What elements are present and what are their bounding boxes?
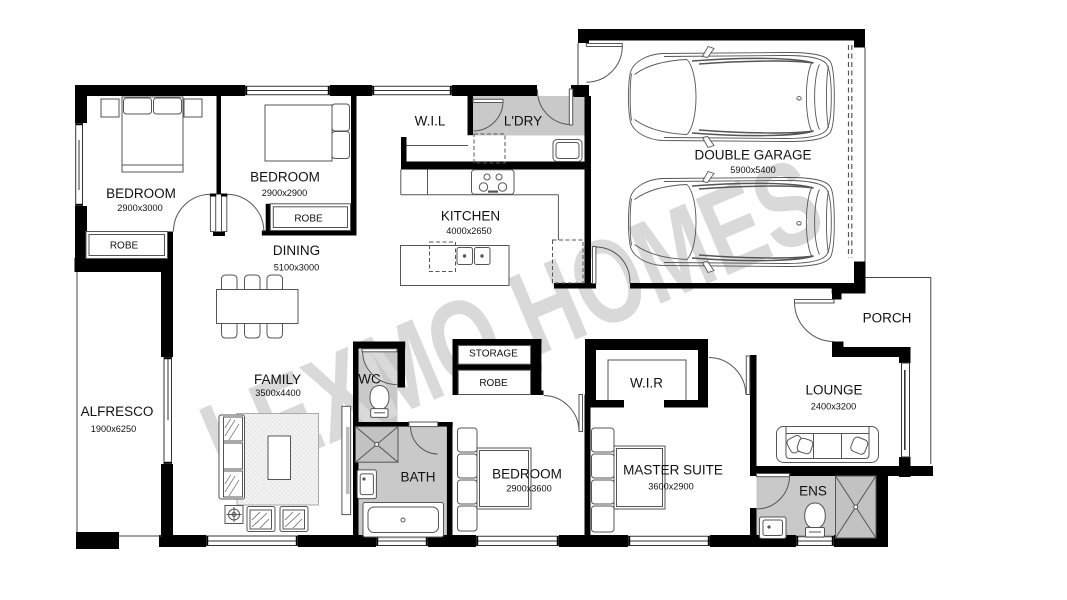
svg-text:1900x6250: 1900x6250 [91, 424, 136, 434]
svg-text:ROBE: ROBE [479, 378, 508, 389]
svg-text:FAMILY: FAMILY [254, 372, 301, 387]
svg-text:BEDROOM: BEDROOM [250, 170, 320, 185]
svg-text:DOUBLE GARAGE: DOUBLE GARAGE [694, 148, 811, 163]
svg-text:4000x2650: 4000x2650 [446, 226, 491, 236]
svg-text:2900x3000: 2900x3000 [117, 203, 162, 213]
svg-text:5100x3000: 5100x3000 [274, 263, 319, 273]
svg-text:2400x3200: 2400x3200 [811, 402, 856, 412]
svg-text:W.I.L: W.I.L [415, 114, 446, 129]
svg-text:MASTER SUITE: MASTER SUITE [623, 463, 723, 478]
svg-text:L'DRY: L'DRY [504, 114, 542, 129]
svg-text:3600x2900: 3600x2900 [648, 482, 693, 492]
svg-text:3500x4400: 3500x4400 [255, 388, 300, 398]
svg-text:BATH: BATH [400, 470, 435, 485]
svg-text:DINING: DINING [273, 243, 320, 258]
svg-text:STORAGE: STORAGE [469, 349, 518, 360]
svg-text:BEDROOM: BEDROOM [492, 467, 562, 482]
svg-text:ALFRESCO: ALFRESCO [81, 404, 154, 419]
svg-text:WC: WC [358, 372, 381, 387]
svg-text:ROBE: ROBE [294, 214, 323, 225]
svg-text:ROBE: ROBE [110, 241, 139, 252]
svg-text:KITCHEN: KITCHEN [441, 209, 500, 224]
svg-text:ENS: ENS [799, 484, 827, 499]
svg-text:BEDROOM: BEDROOM [106, 186, 176, 201]
svg-text:2900x2900: 2900x2900 [262, 188, 307, 198]
svg-text:5900x5400: 5900x5400 [730, 165, 775, 175]
svg-text:PORCH: PORCH [863, 311, 912, 326]
svg-text:LOUNGE: LOUNGE [805, 383, 862, 398]
svg-text:W.I.R: W.I.R [630, 376, 663, 391]
svg-text:2900x3600: 2900x3600 [506, 484, 551, 494]
